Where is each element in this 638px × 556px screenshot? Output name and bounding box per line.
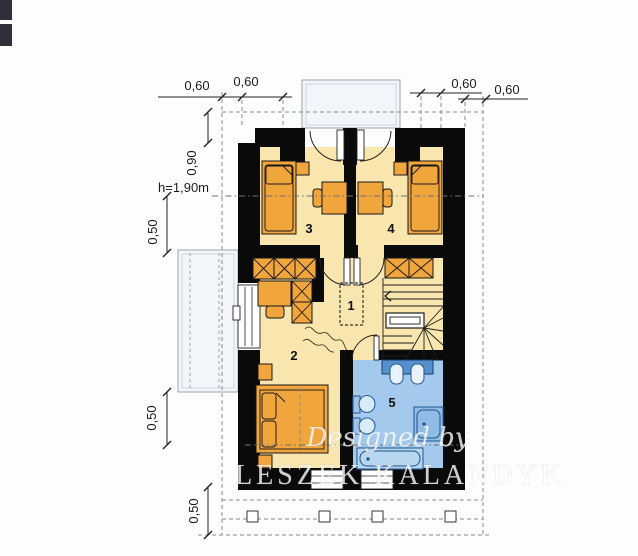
wardrobe-row-room2 xyxy=(253,258,316,279)
chair xyxy=(383,189,392,207)
room-label-5: 5 xyxy=(388,395,395,410)
room-label-3: 3 xyxy=(305,221,312,236)
balcony-left xyxy=(178,250,238,392)
wardrobe-row-stairs xyxy=(385,258,433,278)
dim-left-050-lower: 0,50 xyxy=(144,405,159,430)
floor-plan-page: 0,60 0,60 0,60 0,60 0,90 h=1,90m 0,50 0,… xyxy=(0,0,638,556)
dim-top-left-1: 0,60 xyxy=(184,78,209,93)
dim-left-050-upper: 0,50 xyxy=(145,219,160,244)
nightstand xyxy=(394,162,407,175)
dim-top-right-2: 0,60 xyxy=(494,82,519,97)
dormer-loggia-top xyxy=(302,80,400,128)
chair xyxy=(313,189,322,207)
dim-top-right-1: 0,60 xyxy=(451,76,476,91)
desk xyxy=(358,182,383,214)
washbasin xyxy=(411,364,424,384)
floor-plan-svg: 0,60 0,60 0,60 0,60 0,90 h=1,90m 0,50 0,… xyxy=(0,0,638,556)
room-label-2: 2 xyxy=(290,348,297,363)
height-note: h=1,90m xyxy=(158,180,209,195)
nightstand xyxy=(296,162,309,175)
dim-top-left-2: 0,60 xyxy=(233,74,258,89)
chair xyxy=(266,306,284,318)
desk xyxy=(258,281,291,306)
watermark-line1: Designed by xyxy=(306,423,470,453)
watermark-line2: LESZEK KALANDYK xyxy=(235,460,565,491)
toilet xyxy=(353,396,375,414)
washbasin xyxy=(390,364,403,384)
room-label-1: 1 xyxy=(347,298,354,313)
room-label-4: 4 xyxy=(387,221,395,236)
dim-bottom-050: 0,50 xyxy=(186,498,201,523)
wardrobe-column-room2 xyxy=(292,281,312,323)
nightstand xyxy=(258,364,272,380)
dim-left-090: 0,90 xyxy=(184,150,199,175)
desk xyxy=(322,182,347,214)
stair-railing xyxy=(386,313,424,328)
